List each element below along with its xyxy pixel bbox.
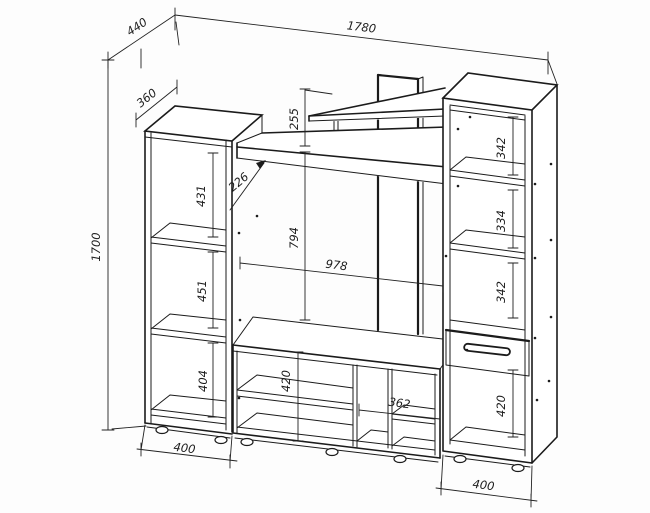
dim-right-shelf-1: 342 (494, 137, 508, 159)
dim-stand-right-width: 362 (388, 395, 411, 412)
dim-tv-opening-height: 794 (287, 227, 301, 249)
wall-unit-drawing: 1780 440 1700 360 431 451 404 400 255 22… (0, 0, 650, 513)
dim-tv-opening-width: 978 (325, 257, 348, 274)
dim-left-base-width: 400 (173, 440, 196, 457)
dim-right-base-width: 400 (472, 477, 495, 494)
lower-shelf (237, 127, 447, 185)
dim-right-shelf-2: 334 (494, 210, 508, 232)
dim-stand-inner-height: 420 (279, 370, 293, 392)
dim-left-shelf-1: 431 (194, 185, 208, 207)
dim-shelf-gap: 255 (287, 108, 301, 130)
dim-overall-height: 1700 (89, 232, 103, 261)
dim-left-top-depth: 360 (134, 86, 160, 111)
dim-left-shelf-2: 451 (195, 280, 209, 302)
dim-left-shelf-3: 404 (196, 370, 210, 392)
dim-overall-width: 1780 (346, 18, 377, 35)
dim-right-bottom-section: 420 (494, 395, 508, 417)
technical-drawing: 1780 440 1700 360 431 451 404 400 255 22… (0, 0, 650, 513)
dim-right-shelf-3: 342 (494, 281, 508, 303)
tv-stand (233, 317, 460, 463)
